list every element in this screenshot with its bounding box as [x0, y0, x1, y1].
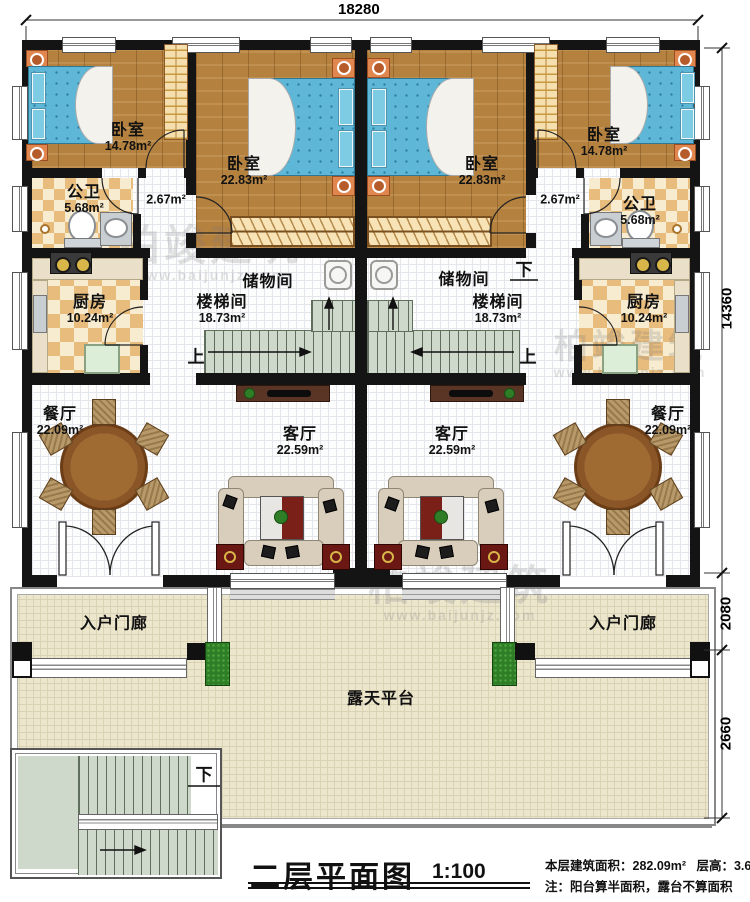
room-label-bedroom-small-right: 卧室14.78m²	[581, 128, 628, 158]
window-sill	[230, 589, 335, 600]
pillow-dark	[415, 545, 430, 559]
shower-icon	[672, 224, 682, 234]
room-label-bathroom-left: 公卫5.68m²	[64, 185, 104, 215]
window	[694, 86, 710, 140]
pillow-dark	[439, 545, 454, 559]
floor-area-text: 本层建筑面积：282.09m² 层高：3.6m	[545, 855, 750, 874]
window	[12, 272, 28, 350]
fridge	[602, 344, 638, 374]
floor-plan: 柏竣建筑 www.baijunjz.com 柏竣建筑 www.baijunjz.…	[0, 0, 750, 902]
closet	[534, 44, 558, 140]
planter	[205, 642, 230, 686]
column	[187, 643, 207, 660]
stairs-right-flight	[367, 330, 520, 375]
tv-icon	[267, 390, 311, 397]
side-table	[480, 544, 508, 570]
window	[402, 573, 507, 589]
nightstand	[26, 50, 48, 67]
room-label-kitchen-right: 厨房10.24m²	[621, 295, 668, 325]
dimension-right-main: 14360	[719, 284, 736, 334]
exterior-stair	[10, 748, 222, 879]
kitchen-sink-icon	[33, 295, 47, 333]
room-label-bedroom-large-left: 卧室22.83m²	[221, 157, 268, 187]
room-label-stairwell-right: 楼梯间18.73m²	[472, 295, 523, 325]
stove-icon	[630, 252, 672, 274]
toilet-tank	[622, 238, 660, 248]
porch-railing	[535, 658, 692, 678]
drawing-scale: 1:100	[432, 860, 486, 884]
stairs-left-upper	[311, 300, 357, 332]
room-label-bedroom-small-left: 卧室14.78m²	[105, 123, 152, 153]
corner-column	[12, 642, 32, 659]
planter	[492, 642, 517, 686]
pillow-dark	[285, 545, 300, 559]
window-sill	[402, 589, 507, 600]
window	[12, 86, 28, 140]
wardrobe	[230, 216, 355, 247]
terrace-ground-line	[195, 826, 712, 828]
room-label-dining-left: 餐厅22.09m²	[37, 407, 84, 437]
room-label-storage-left: 储物间	[242, 275, 293, 292]
page-title: 二层平面图	[250, 852, 415, 896]
room-label-terrace: 露天平台	[347, 692, 415, 709]
window	[62, 37, 116, 53]
chair	[92, 399, 116, 425]
basin-icon	[104, 218, 128, 238]
dimension-top: 18280	[338, 1, 380, 18]
nightstand	[332, 176, 355, 196]
fridge	[84, 344, 120, 374]
bed	[28, 66, 112, 144]
dimension-right-terrace: 2660	[718, 712, 735, 756]
window	[694, 272, 710, 350]
corner-column	[690, 642, 710, 659]
sofa	[244, 540, 324, 566]
window	[694, 186, 710, 232]
chair	[606, 509, 630, 535]
window	[12, 186, 28, 232]
center-wall	[355, 40, 367, 575]
stairs-left-flight	[204, 330, 357, 375]
window	[12, 432, 28, 528]
room-label-storage-right: 储物间	[438, 273, 489, 290]
shower-icon	[40, 224, 50, 234]
room-label-porch-left: 入户门廊	[80, 617, 148, 634]
dimension-right-porch: 2080	[718, 592, 735, 636]
room-label-corridor-left: 2.67m²	[146, 193, 186, 206]
room-label-porch-right: 入户门廊	[589, 617, 657, 634]
porch-divider	[500, 587, 515, 643]
window	[694, 432, 710, 528]
washer-icon	[370, 260, 398, 290]
nightstand	[26, 144, 48, 161]
porch-railing	[30, 658, 187, 678]
nightstand	[367, 58, 390, 78]
room-label-bathroom-right: 公卫5.68m²	[620, 197, 660, 227]
nightstand	[674, 50, 696, 67]
room-label-kitchen-left: 厨房10.24m²	[67, 295, 114, 325]
room-label-corridor-right: 2.67m²	[540, 193, 580, 206]
room-label-bedroom-large-right: 卧室22.83m²	[459, 157, 506, 187]
stair-down-marker-exterior: 下	[196, 761, 213, 786]
basin-icon	[594, 218, 618, 238]
washer-icon	[324, 260, 352, 290]
window	[310, 37, 352, 53]
window	[230, 573, 335, 589]
closet	[164, 44, 188, 140]
sofa	[478, 488, 504, 548]
room-label-stairwell-left: 楼梯间18.73m²	[196, 295, 247, 325]
porch-divider	[207, 587, 222, 643]
nightstand	[367, 176, 390, 196]
nightstand	[674, 144, 696, 161]
room-label-dining-right: 餐厅22.09m²	[645, 407, 692, 437]
stove-icon	[50, 252, 92, 274]
stair-up-marker-right: 上	[520, 343, 537, 368]
side-table	[374, 544, 402, 570]
chair	[92, 509, 116, 535]
kitchen-sink-icon	[675, 295, 689, 333]
tv-console	[430, 385, 524, 402]
room-label-living-right: 客厅22.59m²	[429, 427, 476, 457]
chair	[606, 399, 630, 425]
plant-icon	[435, 511, 447, 523]
wardrobe	[367, 216, 492, 247]
side-table	[322, 544, 350, 570]
column	[515, 643, 535, 660]
tv-console	[236, 385, 330, 402]
plant-icon	[275, 511, 287, 523]
window	[606, 37, 660, 53]
corner-column	[690, 659, 710, 678]
nightstand	[332, 58, 355, 78]
note-text: 注：阳台算半面积，露台不算面积	[545, 876, 733, 895]
stair-up-marker-left: 上	[188, 343, 205, 368]
room-label-living-left: 客厅22.59m²	[277, 427, 324, 457]
toilet-tank	[64, 238, 102, 248]
window	[370, 37, 412, 53]
side-table	[216, 544, 244, 570]
stairs-right-upper	[367, 300, 413, 332]
pillow-dark	[261, 545, 276, 559]
tv-icon	[449, 390, 493, 397]
sofa	[398, 540, 478, 566]
sofa	[318, 488, 344, 548]
corner-column	[12, 659, 32, 678]
stair-down-marker-right: 下	[516, 256, 533, 281]
